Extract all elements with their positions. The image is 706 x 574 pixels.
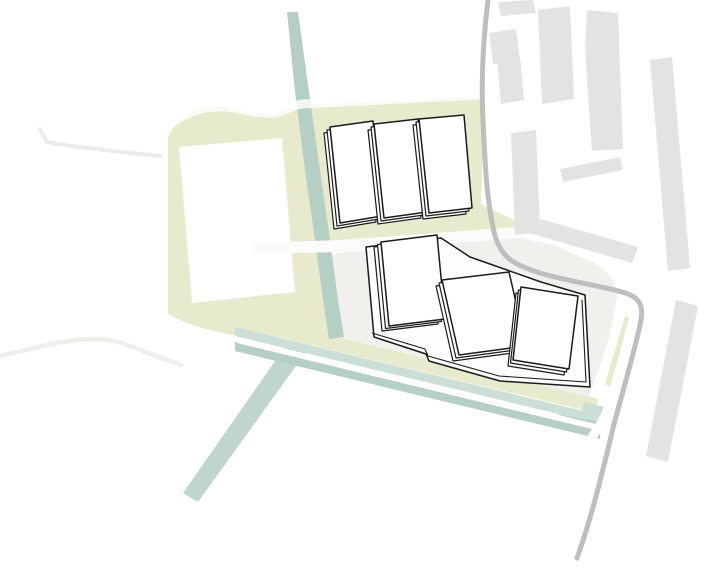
field-clearing [179,138,295,303]
context-building [538,6,574,104]
site-plan-canvas [0,0,706,574]
building-roof [381,235,445,326]
context-building [560,157,623,182]
context-building [497,57,524,104]
building-slab-north-3 [413,115,472,219]
building-block-south-east [508,287,578,375]
minor-road-west [0,339,181,365]
context-building [585,10,623,151]
building-slab-south-west [374,235,445,331]
context-building [498,0,536,16]
context-building [646,300,698,462]
building-roof [513,287,578,369]
minor-road-northwest [40,129,160,156]
building-roof [419,115,472,213]
context-building [650,57,690,271]
canal-path-diagonal-southwest [183,344,306,502]
